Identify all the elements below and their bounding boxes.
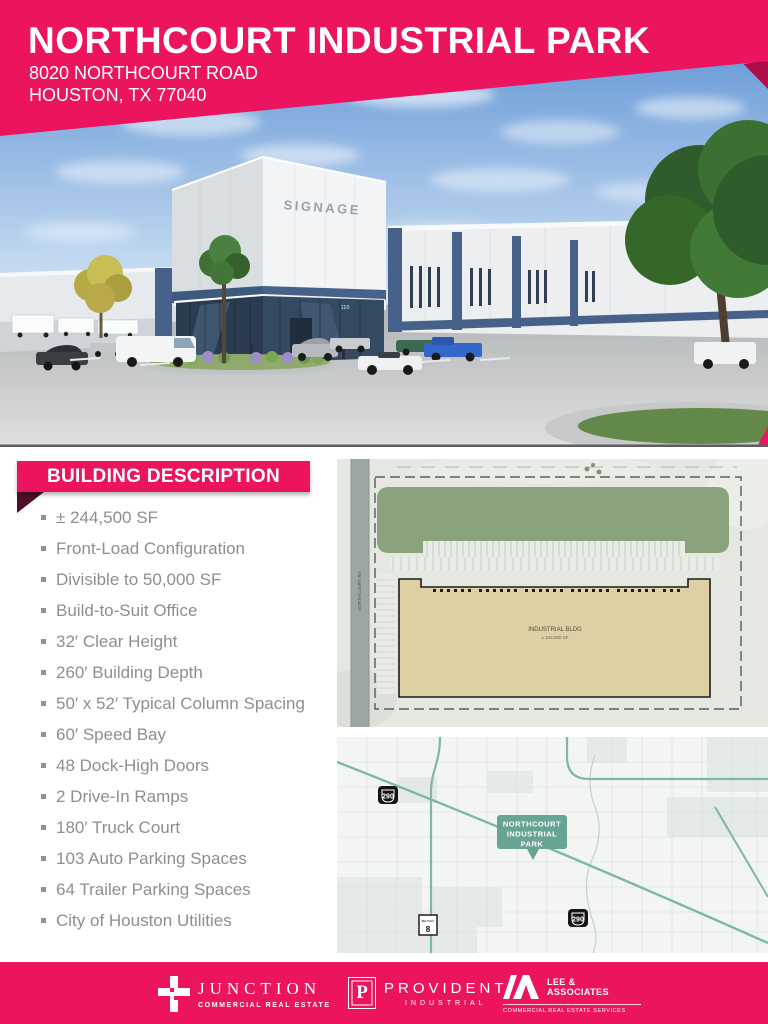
west-parking xyxy=(377,574,395,694)
description-item-text: 50′ x 52′ Typical Column Spacing xyxy=(56,694,305,713)
description-item-text: 32′ Clear Height xyxy=(56,632,177,651)
provident-logo: P PROVIDENT INDUSTRIAL xyxy=(348,977,508,1009)
description-item: 180′ Truck Court xyxy=(40,818,340,838)
address-line-2: HOUSTON, TX 77040 xyxy=(29,84,258,106)
trailer-parking xyxy=(425,541,685,557)
provident-tagline: INDUSTRIAL xyxy=(384,1000,508,1007)
bullet-square-icon xyxy=(41,608,46,613)
description-item-text: 180′ Truck Court xyxy=(56,818,180,837)
svg-text:290: 290 xyxy=(572,917,584,924)
property-address: 8020 NORTHCOURT ROAD HOUSTON, TX 77040 xyxy=(29,62,258,106)
description-item-text: Build-to-Suit Office xyxy=(56,601,197,620)
building-description-heading: BUILDING DESCRIPTION xyxy=(17,461,310,492)
flyer-page: SIGNAGE 110 xyxy=(0,0,768,1024)
description-item: Divisible to 50,000 SF xyxy=(40,570,340,590)
road-label: NORTHCOURT RD xyxy=(357,571,362,611)
junction-pinwheel-icon xyxy=(158,976,190,1012)
location-map: 290 290 BELTWAY 8 NORTHCOURT INDUSTRIAL … xyxy=(337,737,768,953)
lee-associates-logo: LEE & ASSOCIATES COMMERCIAL REAL ESTATE … xyxy=(503,975,641,1014)
bullet-square-icon xyxy=(41,515,46,520)
description-item-text: 60′ Speed Bay xyxy=(56,725,166,744)
description-item: ± 244,500 SF xyxy=(40,508,340,528)
bullet-square-icon xyxy=(41,577,46,582)
description-item: City of Houston Utilities xyxy=(40,911,340,931)
description-item-text: City of Houston Utilities xyxy=(56,911,232,930)
svg-text:NORTHCOURT: NORTHCOURT xyxy=(503,820,561,829)
description-item-text: ± 244,500 SF xyxy=(56,508,158,527)
description-item: 103 Auto Parking Spaces xyxy=(40,849,340,869)
description-item: Build-to-Suit Office xyxy=(40,601,340,621)
description-item-text: Front-Load Configuration xyxy=(56,539,245,558)
provident-p-mark: P xyxy=(348,977,376,1009)
shield-us290-bottom: 290 xyxy=(568,909,588,927)
address-line-1: 8020 NORTHCOURT ROAD xyxy=(29,62,258,84)
bullet-square-icon xyxy=(41,732,46,737)
bullet-square-icon xyxy=(41,918,46,923)
junction-logo: JUNCTION COMMERCIAL REAL ESTATE xyxy=(158,976,331,1012)
description-item: 260′ Building Depth xyxy=(40,663,340,683)
svg-text:PARK: PARK xyxy=(521,840,544,849)
bullet-square-icon xyxy=(41,670,46,675)
description-item-text: 48 Dock-High Doors xyxy=(56,756,209,775)
footer-band: JUNCTION COMMERCIAL REAL ESTATE P PROVID… xyxy=(0,962,768,1024)
description-item: 64 Trailer Parking Spaces xyxy=(40,880,340,900)
bullet-square-icon xyxy=(41,825,46,830)
description-item-text: 64 Trailer Parking Spaces xyxy=(56,880,251,899)
page-title: NORTHCOURT INDUSTRIAL PARK xyxy=(28,20,650,62)
svg-text:INDUSTRIAL: INDUSTRIAL xyxy=(507,830,557,839)
svg-text:290: 290 xyxy=(382,794,394,801)
description-item: Front-Load Configuration xyxy=(40,539,340,559)
bullet-square-icon xyxy=(41,639,46,644)
description-item-text: 260′ Building Depth xyxy=(56,663,203,682)
svg-text:BELTWAY: BELTWAY xyxy=(422,919,435,923)
building-description-list: ± 244,500 SF Front-Load Configuration Di… xyxy=(40,508,340,942)
description-item-text: 103 Auto Parking Spaces xyxy=(56,849,247,868)
description-item: 50′ x 52′ Typical Column Spacing xyxy=(40,694,340,714)
description-item: 60′ Speed Bay xyxy=(40,725,340,745)
bullet-square-icon xyxy=(41,887,46,892)
auto-parking-row xyxy=(389,557,719,570)
site-plan-figure: NORTHCOURT RD xyxy=(337,459,768,727)
plan-building-label: INDUSTRIAL BLDG xyxy=(528,627,582,633)
description-item: 32′ Clear Height xyxy=(40,632,340,652)
provident-name: PROVIDENT xyxy=(384,980,508,997)
shield-us290-top: 290 xyxy=(378,786,398,804)
suite-number-text: 110 xyxy=(341,305,350,311)
junction-tagline: COMMERCIAL REAL ESTATE xyxy=(198,1002,331,1009)
shield-beltway8: BELTWAY 8 xyxy=(419,915,437,935)
lee-tagline: COMMERCIAL REAL ESTATE SERVICES xyxy=(503,1004,641,1014)
junction-name: JUNCTION xyxy=(198,979,331,999)
description-item: 2 Drive-In Ramps xyxy=(40,787,340,807)
svg-text:8: 8 xyxy=(426,925,431,934)
bullet-square-icon xyxy=(41,856,46,861)
lee-associates-mark xyxy=(503,975,541,999)
bullet-square-icon xyxy=(41,546,46,551)
lee-name-line2: ASSOCIATES xyxy=(547,987,609,997)
bullet-square-icon xyxy=(41,763,46,768)
description-item-text: 2 Drive-In Ramps xyxy=(56,787,188,806)
bullet-square-icon xyxy=(41,794,46,799)
bullet-square-icon xyxy=(41,701,46,706)
description-item-text: Divisible to 50,000 SF xyxy=(56,570,221,589)
description-item: 48 Dock-High Doors xyxy=(40,756,340,776)
plan-building-area: ± 244,500 SF xyxy=(542,635,569,640)
lee-name-line1: LEE & xyxy=(547,977,609,987)
